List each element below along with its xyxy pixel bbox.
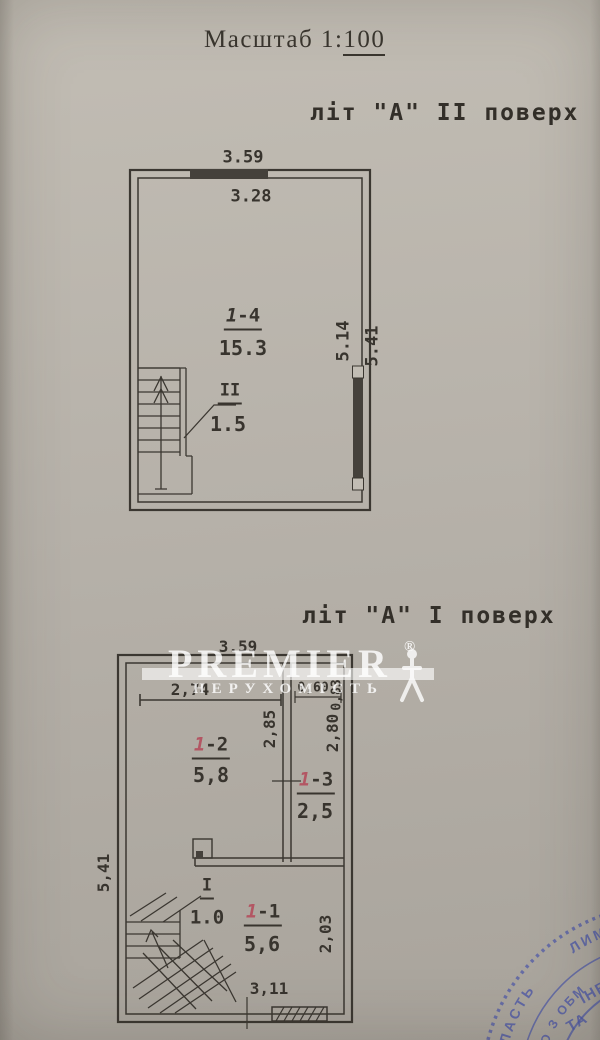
floor1-dim-top-right: 0,60 [297, 682, 328, 695]
scale-value: 100 [343, 26, 385, 56]
floor1-stair-arrow [146, 930, 168, 968]
floor1-dim-right-lower: 2,03 [318, 915, 334, 954]
floor1-room3-area: 2,5 [297, 801, 333, 821]
floor2-window-right [353, 378, 363, 478]
floor2-window-top [190, 169, 268, 179]
floor1-partition-vertical [283, 663, 291, 862]
scale-title: Масштаб 1:100 [204, 26, 385, 54]
floor1-room2-number: 1-2 [192, 736, 230, 755]
floor1-room3-number: 1-3 [297, 771, 335, 790]
floor1-plan-drawing [118, 655, 352, 1029]
floor1-stair-area: 1.0 [190, 909, 224, 928]
floor1-room2-number-suffix: -2 [205, 734, 228, 756]
floor1-stair-label: I [200, 878, 214, 895]
floor1-dim-left-outer: 5,41 [96, 854, 112, 893]
floor2-dim-top-inner: 3.28 [231, 189, 272, 206]
floor1-dim-mid-right: 2,80 [325, 714, 341, 753]
floor1-room3-number-suffix: -3 [310, 769, 333, 791]
floor2-stair-area: 1.5 [210, 414, 246, 434]
floor2-stair-label-text: II [218, 381, 242, 405]
floor1-room3-number-prefix: 1 [299, 769, 310, 791]
plan-linework [0, 0, 600, 1040]
floor2-room-number-prefix: 1 [226, 305, 237, 327]
scale-title-text: Масштаб 1: [204, 26, 343, 53]
floor1-room1-area: 5,6 [244, 934, 280, 954]
floor1-label: літ "А" I поверх [302, 603, 556, 629]
floor2-stair-label: II [218, 383, 242, 400]
floor2-dim-right-inner: 5.14 [336, 321, 353, 362]
floor1-room1-number: 1-1 [244, 903, 282, 922]
floor1-dim-bottom: 3,11 [250, 981, 289, 997]
floor2-room-number: 1-4 [224, 307, 262, 326]
floor1-room2-area: 5,8 [193, 765, 229, 785]
floor1-room1-number-suffix: -1 [257, 901, 280, 923]
floor2-label: літ "А" II поверх [310, 100, 579, 126]
floor1-dim-corner-small: 0,83 [331, 679, 344, 710]
floor1-dim-top-outer: 3.59 [219, 639, 258, 655]
floor2-staircase [138, 368, 192, 494]
floor2-dim-top-outer: 3.59 [223, 150, 264, 167]
floor1-room1-number-prefix: 1 [246, 901, 257, 923]
floor2-stair-arrow [155, 376, 167, 489]
floor1-dim-mid-left: 2,85 [262, 710, 278, 749]
floor1-partition-horizontal [195, 858, 344, 866]
floor1-room2-number-prefix: 1 [194, 734, 205, 756]
floor2-room-number-suffix: -4 [237, 305, 260, 327]
floorplan-document-photo: Масштаб 1:100 літ "А" II поверх 3.59 3.2… [0, 0, 600, 1040]
floor2-dim-right-outer: 5.41 [365, 326, 382, 367]
floor1-stair-label-text: I [200, 876, 214, 900]
floor1-dim-top-left: 2,74 [171, 682, 210, 698]
floor2-room-area: 15.3 [219, 338, 267, 358]
